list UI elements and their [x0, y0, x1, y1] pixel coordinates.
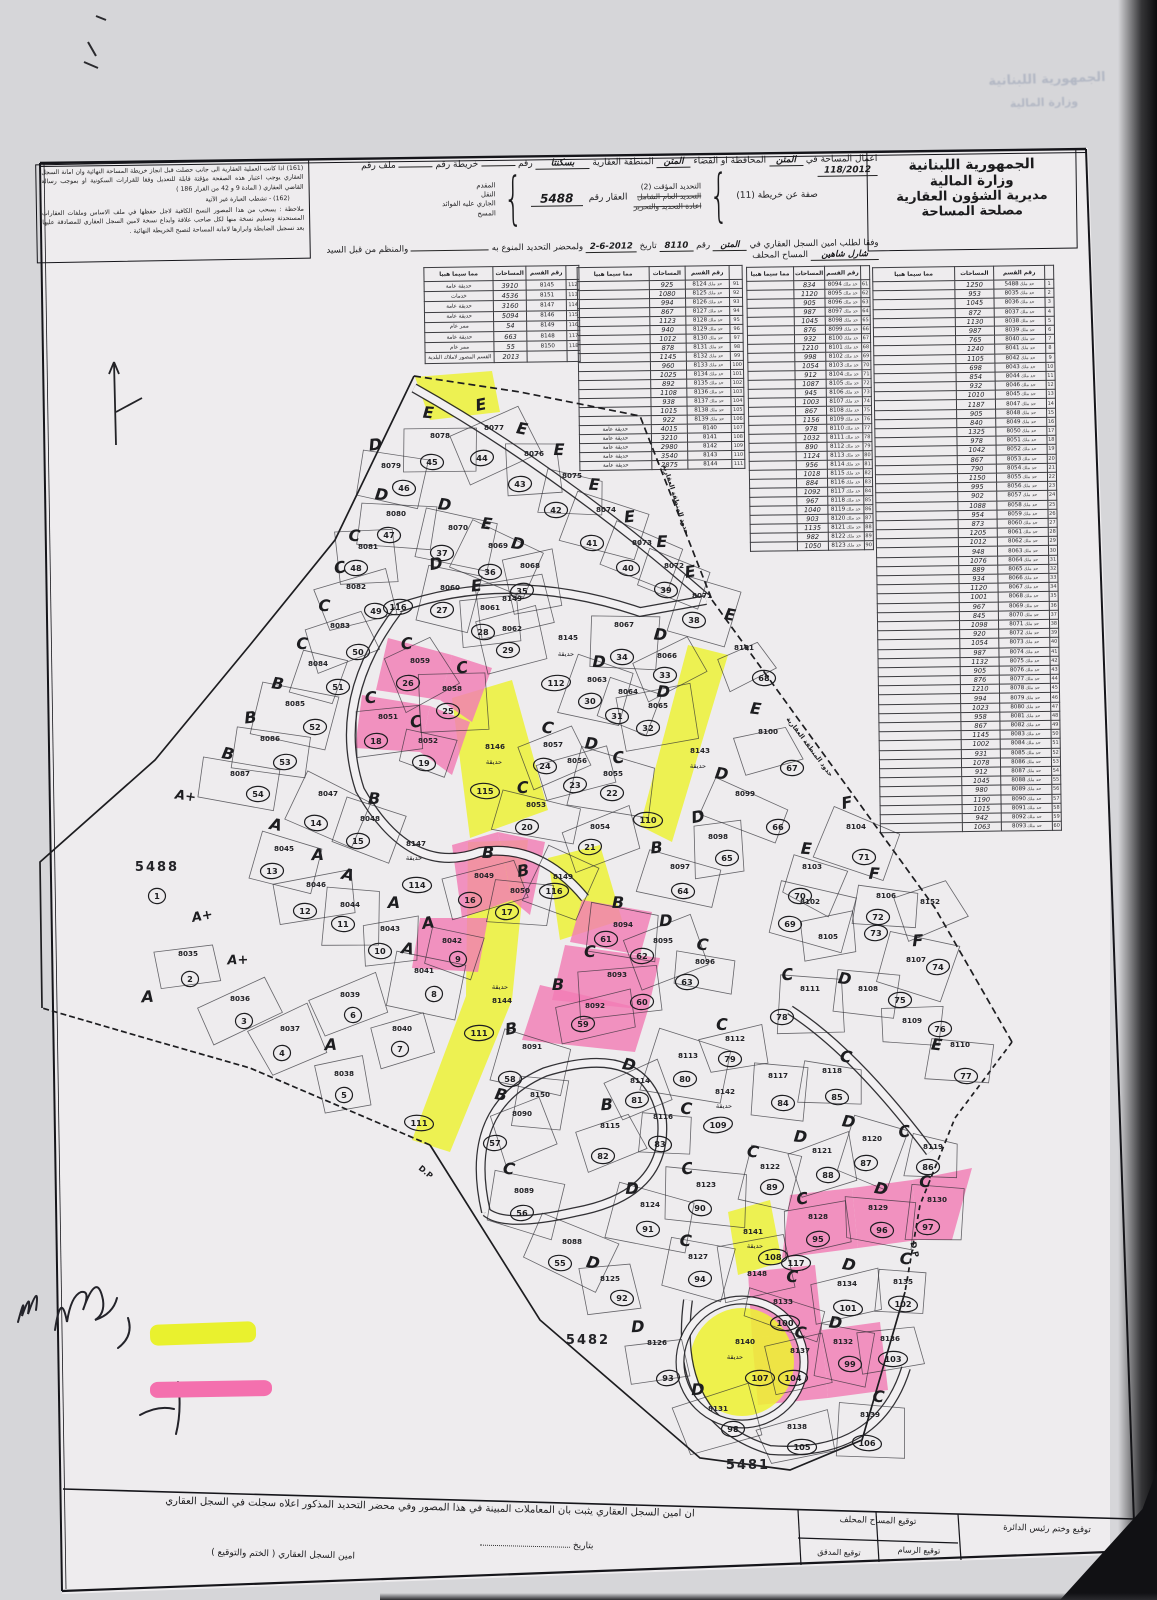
circled-index-number: 59 [577, 1019, 589, 1029]
zone-letter: E [800, 839, 812, 859]
circled-index-number: 39 [660, 585, 672, 595]
circled-index-number: 53 [279, 757, 291, 767]
form-label-zone: المنطقة العقارية [592, 157, 653, 168]
zone-letter: A [139, 987, 154, 1007]
circled-index-number: 71 [858, 852, 870, 862]
parcel-number: 8051 [378, 712, 398, 721]
circled-index-number: 51 [332, 682, 344, 692]
parcel-number: 8102 [800, 897, 820, 906]
zone-letter: A [398, 938, 415, 959]
circled-index-number: 89 [766, 1182, 778, 1192]
circled-index-number: 96 [876, 1225, 888, 1235]
circled-index-number: 99 [844, 1359, 856, 1369]
parcel-number: 8107 [906, 955, 926, 964]
zone-letter: B [650, 838, 664, 858]
parcel-number: 8117 [768, 1071, 788, 1080]
zone-letter: C [502, 1158, 517, 1179]
circled-index-number: 18 [370, 736, 382, 746]
parcel-number: 8085 [285, 699, 305, 708]
zone-letter: A+ [173, 787, 197, 805]
parcel-number: 8142 [715, 1087, 735, 1096]
zone-letter: A [266, 814, 284, 835]
parcel-number: 8058 [442, 684, 462, 693]
circled-index-number: 56 [516, 1208, 528, 1218]
legend-yellow-swatch [150, 1321, 257, 1346]
circled-index-number: 73 [870, 928, 882, 938]
zone-letter: D [374, 484, 389, 504]
parcel-number: 8125 [600, 1274, 620, 1283]
zone-letter: D [828, 1312, 843, 1332]
ministry-header-box: الجمهورية اللبنانية وزارة المالية مديرية… [866, 149, 1077, 252]
parcel-number: 8036 [230, 994, 250, 1003]
zone-letter: C [541, 717, 556, 737]
circled-index-number: 48 [350, 563, 362, 573]
parcel-number: 8098 [708, 832, 728, 841]
parcel-number: 8065 [648, 701, 668, 710]
zone-letter: D [585, 1252, 602, 1273]
footer-date-blank [480, 1545, 570, 1548]
zone-letter: D [592, 652, 606, 671]
circled-index-number: 52 [309, 722, 320, 732]
zone-letter: D [841, 1254, 858, 1275]
circled-index-number: 78 [776, 1012, 788, 1022]
parcel-number: 8146 [485, 742, 505, 751]
parcel-boundary [198, 977, 283, 1045]
form-label-registrar-request: وفقا لطلب امين السجل العقاري في [750, 238, 879, 250]
parcel-label: A [139, 987, 154, 1007]
circled-index-number: 58 [504, 1074, 516, 1084]
zone-letter: F [912, 931, 924, 950]
circled-index-number: 67 [786, 763, 798, 773]
parcel-number: 8114 [630, 1076, 650, 1085]
form-value-zone: بسكنتا [535, 158, 589, 170]
parcel-label: A804411 [322, 864, 380, 946]
parcel-boundary [502, 549, 562, 615]
zone-letter: E [683, 561, 697, 581]
circled-index-number: 25 [442, 706, 454, 716]
footer-date-label: بتاريخ [573, 1541, 594, 1552]
column-header: مما سيما هبيا [747, 267, 794, 282]
circled-index-number: 3 [241, 1016, 247, 1026]
parcel-label: A+80363 [198, 953, 283, 1045]
circled-index-number: 2 [187, 974, 193, 984]
form-delimitation-options: التحديد المؤقت (2) التحديد العام الشامل … [633, 182, 701, 213]
circled-index-number: 22 [606, 788, 617, 798]
form-value-parcel-number: 5488 [531, 191, 583, 207]
parcel-number: 8074 [596, 505, 616, 514]
form-value-governorate: المتن [657, 157, 691, 168]
parcel-label: B808653 [231, 708, 310, 778]
column-header: مما سيما هبيا [577, 267, 649, 282]
circled-index-number: 8 [431, 989, 437, 999]
parcel-number: 8073 [632, 538, 652, 547]
zone-letter: D [631, 1317, 645, 1336]
form-label-survey-in: اعمال المساحة في [806, 154, 878, 165]
circled-index-number: 50 [352, 647, 364, 657]
zone-letter: D [584, 733, 599, 753]
column-header: المساحات [793, 266, 825, 280]
parcel-number: 8045 [274, 844, 294, 853]
zone-letter: B [552, 975, 564, 994]
circled-index-number: 76 [934, 1024, 946, 1034]
zone-letter: A+ [226, 953, 248, 969]
parcel-number: 8054 [590, 822, 610, 831]
zone-letter: D [653, 624, 668, 644]
parcel-number: 8116 [653, 1112, 673, 1121]
circled-index-number: 111 [470, 1028, 487, 1038]
parcel-number: 8039 [340, 990, 360, 999]
form-label-map-number: خريطة رقم [435, 160, 478, 171]
parcel-label: A+ [173, 787, 197, 805]
parcel-number: 8082 [346, 582, 366, 591]
form-value-request-number: 8110 [659, 241, 693, 252]
circled-index-number: 116 [545, 886, 562, 896]
circled-index-number: 27 [436, 605, 448, 615]
circled-index-number: 100 [776, 1318, 793, 1328]
parcel-number: 8035 [178, 949, 198, 958]
parcel-number: 8066 [657, 651, 677, 660]
form-label-request-number: رقم [696, 240, 710, 250]
circled-index-number: 12 [299, 906, 310, 916]
circled-index-number: 29 [502, 645, 514, 655]
parcel-number: 8061 [480, 603, 500, 612]
parcel-number: 8088 [562, 1237, 582, 1246]
zone-letter: D [691, 1380, 705, 1399]
parcel-label: 54881 [135, 860, 179, 904]
parcel-label: A804612 [273, 845, 355, 925]
parcel-number: 8137 [790, 1346, 810, 1355]
parcel-label: 8142حديقة109 [703, 1087, 735, 1135]
parcel-number: 8127 [688, 1252, 708, 1261]
parcel-number: 8077 [484, 423, 504, 432]
column-header: رقم القسم [994, 265, 1044, 280]
zone-letter: C [584, 942, 596, 961]
circled-index-number: 7 [397, 1044, 403, 1054]
parcel-boundary [636, 850, 721, 908]
circled-index-number: 91 [642, 1224, 654, 1234]
parcel-number: 8064 [618, 687, 638, 696]
parcel-number: 8124 [640, 1200, 660, 1209]
parcel-number: 8083 [330, 621, 350, 630]
column-header: رقم القسم [685, 266, 730, 281]
note-item-general: ملاحظة : يسحب من هذا المصور النسخ الكافي… [42, 205, 304, 237]
zone-letter: C [716, 1015, 728, 1034]
parcel-label: B811582 [576, 1095, 647, 1173]
parcel-boundary [371, 1013, 435, 1069]
parcel-boundary [579, 1264, 641, 1315]
zone-letter: C [332, 557, 348, 578]
option-survey: المسح [442, 209, 496, 219]
circled-index-number: 101 [839, 1303, 856, 1313]
form-value-surveyor-name: شارل شاهين [811, 249, 879, 261]
zone-letter: C [680, 1099, 693, 1119]
highlight-parcel [376, 638, 452, 700]
circled-index-number: 114 [408, 880, 425, 890]
zone-letter: C [696, 934, 710, 954]
zone-letter: D [659, 911, 673, 930]
parcel-number: 8130 [927, 1195, 947, 1204]
zone-letter: B [220, 743, 236, 764]
circled-index-number: 46 [398, 483, 410, 493]
zone-letter: D [837, 968, 853, 989]
parcel-label: C8135102 [875, 1248, 926, 1313]
zone-letter: C [786, 1267, 799, 1286]
circled-index-number: 94 [694, 1274, 706, 1284]
form-value-file-number: 118/2012 [817, 165, 877, 177]
zone-letter: E [588, 475, 600, 495]
parcel-number: 8087 [230, 769, 250, 778]
parcel-number: 8090 [512, 1109, 532, 1118]
zone-letter: B [270, 673, 285, 693]
circled-index-number: 33 [659, 670, 671, 680]
form-label-parcel-number: العقار رقم [589, 193, 628, 204]
circled-index-number: 115 [476, 786, 493, 796]
circled-index-number: 85 [831, 1092, 843, 1102]
parcel-number: 8126 [647, 1338, 667, 1347]
circled-index-number: 62 [636, 951, 647, 961]
parcel-number: 8063 [587, 675, 607, 684]
circled-index-number: 40 [622, 563, 634, 573]
circled-index-number: 42 [550, 505, 561, 515]
parcel-label: C812794 [662, 1230, 736, 1301]
circled-index-number: 74 [932, 962, 944, 972]
zone-letter: C [680, 1158, 695, 1179]
column-header: رقم القسم [825, 266, 861, 280]
parcel-number: 8097 [670, 862, 690, 871]
parcel-number: 8041 [414, 966, 434, 975]
circled-index-number: 84 [777, 1098, 789, 1108]
parcel-number: 8038 [334, 1069, 354, 1078]
parcel-number: 8140 [735, 1337, 755, 1346]
parcel-number: 5488 [135, 860, 179, 875]
parcel-number: 8112 [725, 1034, 745, 1043]
circled-index-number: 20 [521, 822, 533, 832]
parcel-number: 8075 [562, 471, 582, 480]
circled-index-number: 24 [539, 761, 551, 771]
zone-letter: A [386, 893, 400, 912]
parcel-number: 8091 [522, 1042, 542, 1051]
parcel-number: 8111 [800, 984, 820, 993]
circled-index-number: 64 [677, 886, 689, 896]
highlight-parcel [782, 1188, 858, 1258]
zone-letter: C [781, 964, 795, 984]
parcel-number: 8152 [920, 897, 940, 906]
garden-label: حديقة [406, 854, 422, 862]
parcel-number: 8044 [340, 900, 360, 909]
parcel-number: 8096 [695, 957, 715, 966]
zone-letter: E [480, 513, 493, 533]
circled-index-number: 30 [584, 696, 596, 706]
zone-letter: C [612, 747, 626, 767]
parcel-number: 8067 [614, 620, 634, 629]
zone-letter: D [714, 763, 730, 784]
zone-letter: C [364, 688, 377, 708]
form-line-2: صفة عن خريطة (11) } التحديد المؤقت (2) ا… [302, 176, 878, 221]
parcel-number: 8037 [280, 1024, 300, 1033]
parcel-number: 8043 [380, 924, 400, 933]
zone-letter: D [793, 1126, 808, 1146]
circled-index-number: 55 [554, 1258, 566, 1268]
parcel-number: 8109 [902, 1016, 922, 1025]
parcel-label: 8147حديقة114 [402, 839, 432, 893]
parcel-label: A80385 [315, 1035, 371, 1113]
circled-index-number: 61 [600, 934, 612, 944]
zone-boundary [712, 600, 1012, 1042]
parcel-label: D812188 [788, 1126, 857, 1197]
circled-index-number: 15 [352, 836, 364, 846]
parcel-number: 8047 [318, 789, 338, 798]
zone-letter: D [689, 806, 706, 827]
parcel-number: 8094 [613, 920, 633, 929]
zone-letter: A [338, 864, 356, 885]
circled-index-number: 75 [894, 995, 906, 1005]
parcel-label: D809865 [689, 806, 744, 879]
zone-letter: C [296, 634, 309, 653]
circled-index-number: 5 [341, 1090, 347, 1100]
parcel-number: 8055 [603, 769, 623, 778]
column-header: مما سيما هبيا [424, 267, 493, 282]
column-header: المساحات [649, 266, 685, 280]
parcel-number: 8121 [812, 1146, 832, 1155]
header-survey-dept: مصلحة المساحة [874, 203, 1070, 221]
parcel-label: 810269 [769, 881, 856, 953]
parcel-label: 80407 [371, 1013, 435, 1069]
form-label-map-sheet: صفة عن خريطة (11) [736, 190, 818, 201]
highlight-parcel [728, 1200, 782, 1275]
legend-pink-swatch [150, 1380, 272, 1398]
parcel-number: 8080 [386, 509, 406, 518]
zone-letter: C [679, 1230, 693, 1250]
parcel-boundary [600, 521, 683, 591]
parcel-number: 8076 [524, 449, 544, 458]
form-value-registrar-district: المتن [713, 240, 747, 251]
circled-index-number: 66 [772, 822, 784, 832]
parcel-number: 8081 [358, 542, 378, 551]
parcel-boundary [694, 820, 744, 879]
parcel-number: 8042 [442, 936, 462, 945]
circled-index-number: 92 [616, 1293, 627, 1303]
parcel-number: 8113 [678, 1051, 698, 1060]
parcel-number: 8129 [868, 1203, 888, 1212]
column-header: رقم القسم [526, 266, 566, 281]
north-arrow-icon [109, 362, 142, 445]
instructions-note-box: (161) اذا كانت العملية العقارية الى جانب… [35, 160, 311, 264]
circled-index-number: 83 [654, 1139, 666, 1149]
parcel-number: 8068 [520, 561, 540, 570]
circled-index-number: 87 [860, 1158, 872, 1168]
zone-letter: D [368, 434, 383, 454]
parcel-number: 8078 [430, 431, 450, 440]
parcel-boundary [315, 1056, 371, 1113]
garden-label: حديقة [716, 1102, 732, 1110]
road-outline [414, 388, 706, 598]
circled-index-number: 112 [547, 678, 564, 688]
parcel-number: 8132 [833, 1337, 853, 1346]
parcel-number: 8120 [862, 1134, 882, 1143]
parcel-number: 8115 [600, 1121, 620, 1130]
circled-index-number: 103 [884, 1354, 901, 1364]
parcel-label: 8152 [894, 881, 969, 942]
circled-index-number: 93 [662, 1373, 674, 1383]
parcel-label: E810168 [718, 604, 777, 691]
parcel-label: 5481 [726, 1458, 770, 1473]
parcel-number: 8052 [418, 736, 438, 745]
form-label-sworn-surveyor: المساح المحلف [752, 250, 808, 261]
parcel-number: 8141 [743, 1227, 763, 1236]
circled-index-number: 86 [922, 1162, 934, 1172]
form-operation-options: المقدم النقل الجاري عليه الفوائد المسح [442, 181, 496, 218]
parcel-number: 8070 [448, 523, 468, 532]
circled-index-number: 32 [642, 723, 653, 733]
zone-letter: B [612, 893, 624, 912]
circled-index-number: 77 [960, 1071, 972, 1081]
parcel-boundary [699, 1025, 768, 1073]
column-header: المساحات [493, 266, 526, 280]
parcel-number: 8148 [747, 1269, 767, 1278]
circled-index-number: 26 [402, 678, 414, 688]
parcel-number: 8095 [653, 936, 673, 945]
zone-letter: D [841, 1111, 857, 1132]
parcel-label: A+80352 [154, 907, 221, 988]
circled-index-number: 36 [484, 567, 496, 577]
zone-letter: C [872, 1386, 886, 1406]
garden-label: حديقة [558, 650, 574, 658]
parcel-label: F810471 [813, 792, 900, 880]
parcel-number: 8059 [410, 656, 430, 665]
circled-index-number: 107 [751, 1373, 768, 1383]
circled-index-number: 60 [636, 997, 648, 1007]
circled-index-number: 111 [410, 1118, 427, 1128]
circled-index-number: 31 [611, 711, 623, 721]
circled-index-number: 21 [584, 842, 596, 852]
parcel-number: 8119 [923, 1142, 943, 1151]
circled-index-number: 102 [894, 1299, 911, 1309]
zone-letter: F [868, 864, 880, 883]
zone-letter: E [723, 604, 737, 625]
circled-index-number: 11 [337, 919, 349, 929]
circled-index-number: 17 [501, 907, 513, 917]
circled-index-number: 44 [476, 453, 488, 463]
parcel-number: 8147 [406, 839, 426, 848]
form-label-minutes: ولمحضر التحديد المنوع به [492, 242, 584, 253]
zone-letter: C [318, 596, 331, 616]
zone-letter: A+ [190, 907, 214, 926]
parcel-number: 8133 [773, 1297, 793, 1306]
parcel-label: E811077 [925, 1034, 994, 1084]
area-table-g1: رقم القسمالمساحاتمما سيما هبيا1128145391… [423, 265, 580, 364]
circled-index-number: 97 [922, 1222, 934, 1232]
zone-letter: A [322, 1035, 337, 1054]
parcel-number: 8086 [260, 734, 280, 743]
parcel-number: 8139 [860, 1410, 880, 1419]
zone-letter: B [482, 843, 494, 862]
parcel-label: C811986 [897, 1121, 957, 1177]
header-directorate: مديرية الشؤون العقارية [874, 188, 1070, 206]
cadastral-map-svg: E807845E807744E807643E807542E807441E8073… [30, 360, 1105, 1490]
garden-label: حديقة [747, 1242, 763, 1250]
circled-index-number: 4 [279, 1048, 285, 1058]
circled-index-number: 65 [721, 853, 733, 863]
parcel-number: 8079 [381, 461, 401, 470]
zone-letter: E [749, 698, 762, 718]
parcel-number: 5482 [566, 1333, 610, 1348]
option-struck-2: اعادة التحديد والتحرير [634, 202, 702, 213]
circled-index-number: 38 [688, 615, 700, 625]
parcel-number: 8049 [474, 871, 494, 880]
zone-letter: C [795, 1188, 810, 1209]
circled-index-number: 41 [586, 538, 598, 548]
parcel-number: 8104 [846, 822, 866, 831]
